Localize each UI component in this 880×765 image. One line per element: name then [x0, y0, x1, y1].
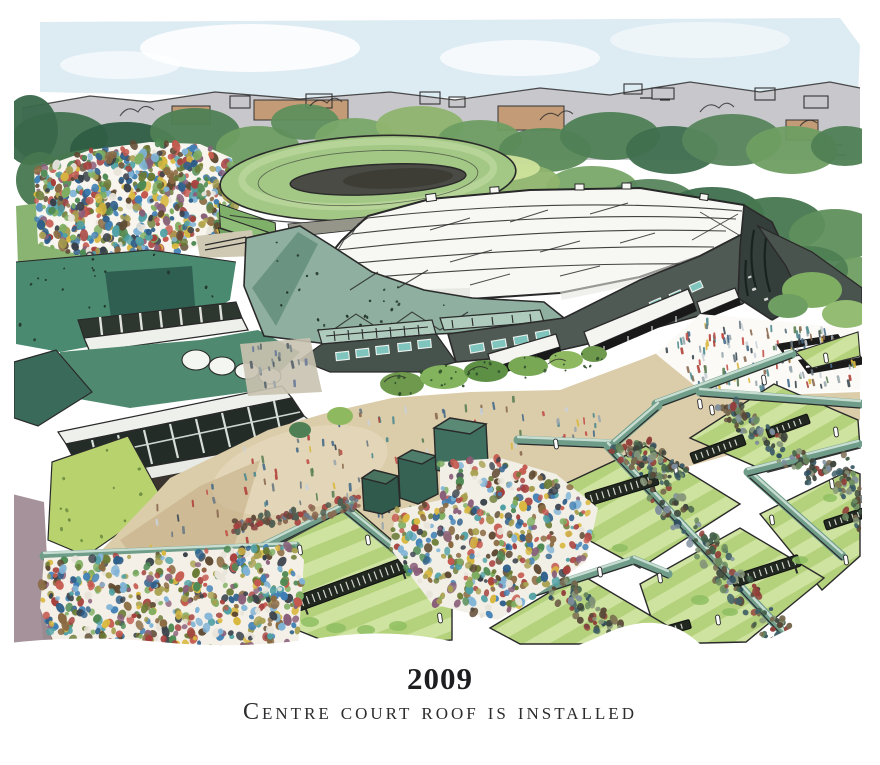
pocket-concourse	[240, 338, 322, 396]
bottom-left-crowd	[37, 540, 307, 650]
caption-title: Centre court roof is installed	[0, 699, 880, 726]
illustration-frame: 2009 Centre court roof is installed	[0, 0, 880, 765]
sky	[40, 18, 860, 98]
caption: 2009 Centre court roof is installed	[0, 662, 880, 726]
wimbledon-illustration	[0, 0, 880, 650]
caption-year: 2009	[0, 662, 880, 696]
